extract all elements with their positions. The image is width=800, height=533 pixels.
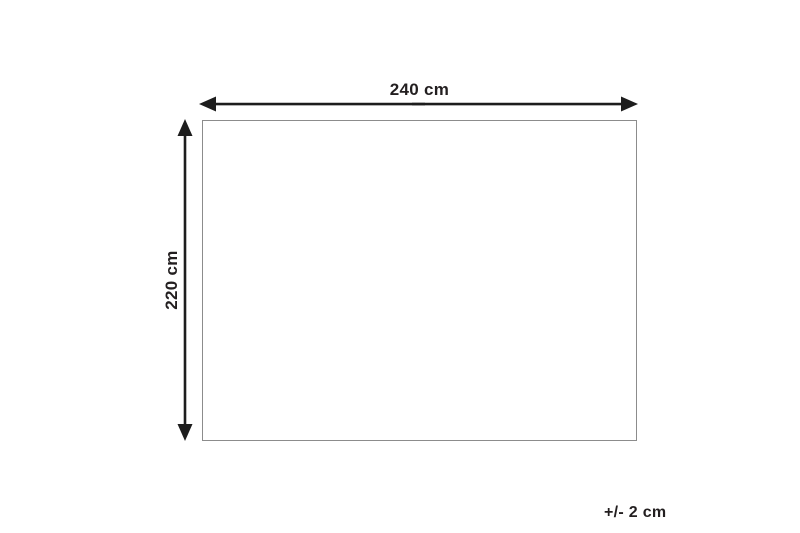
dimension-diagram: 240 cm 220 cm +/- 2 cm <box>0 0 800 533</box>
height-dimension-label: 220 cm <box>162 250 182 309</box>
width-dimension-label: 240 cm <box>202 80 637 100</box>
tolerance-label: +/- 2 cm <box>604 504 666 522</box>
